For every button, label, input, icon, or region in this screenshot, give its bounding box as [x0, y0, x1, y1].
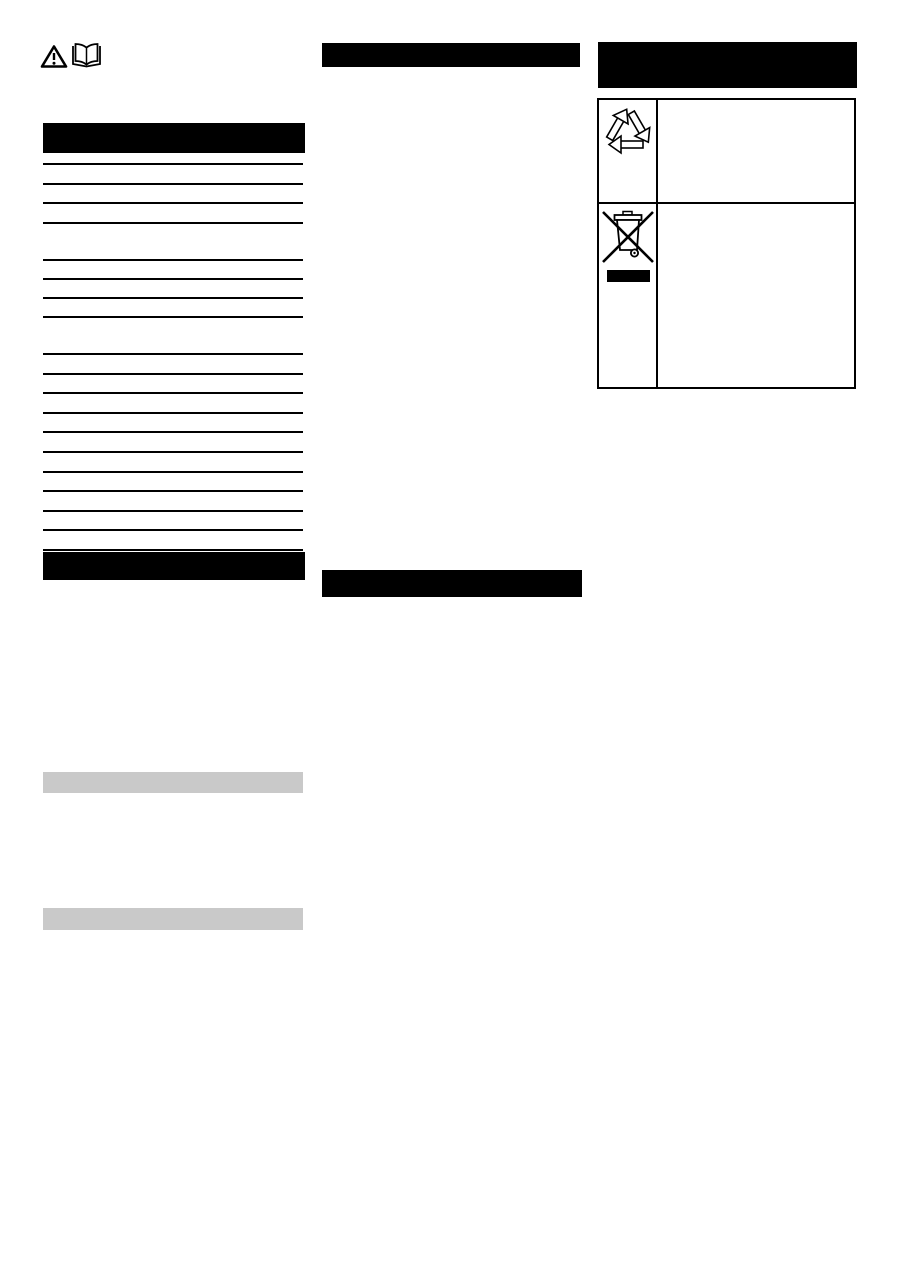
symbol-cell	[599, 100, 658, 202]
toc-entry-line	[43, 278, 303, 280]
toc-entry-line	[43, 529, 303, 531]
toc-entry-line	[43, 183, 303, 185]
recycling-arrows-icon	[602, 106, 654, 158]
left-section-header-bar-1	[43, 123, 305, 153]
toc-entry-line	[43, 163, 303, 165]
right-section-header-bar	[598, 42, 857, 88]
middle-section-header-bar-2	[322, 570, 582, 597]
toc-entry-line	[43, 510, 303, 512]
warning-triangle-icon	[40, 44, 68, 69]
symbol-description	[658, 204, 854, 387]
toc-entry-line	[43, 392, 303, 394]
toc-entry-line	[43, 259, 303, 261]
toc-entry-line	[43, 316, 303, 318]
toc-entry-line	[43, 297, 303, 299]
toc-entry-line	[43, 490, 303, 492]
toc-entry-line	[43, 451, 303, 453]
redacted-label-bar	[607, 270, 650, 282]
toc-entry-line	[43, 471, 303, 473]
table-row	[599, 100, 854, 202]
toc-entry-line	[43, 549, 303, 551]
toc-entry-line	[43, 373, 303, 375]
left-section-header-bar-2	[43, 552, 305, 580]
toc-entry-line	[43, 431, 303, 433]
toc-entry-line	[43, 353, 303, 355]
weee-crossed-out-bin-icon	[600, 208, 656, 266]
symbol-cell	[599, 204, 658, 387]
toc-entry-line	[43, 412, 303, 414]
toc-entry-line	[43, 202, 303, 204]
symbols-table	[597, 98, 856, 389]
read-manual-book-icon	[70, 42, 103, 68]
manual-page	[0, 0, 900, 1273]
middle-section-header-bar-1	[322, 43, 580, 67]
left-subsection-bar-2	[43, 908, 303, 930]
table-row	[599, 202, 854, 387]
toc-entry-line	[43, 222, 303, 224]
left-subsection-bar-1	[43, 772, 303, 793]
symbol-description	[658, 100, 854, 202]
